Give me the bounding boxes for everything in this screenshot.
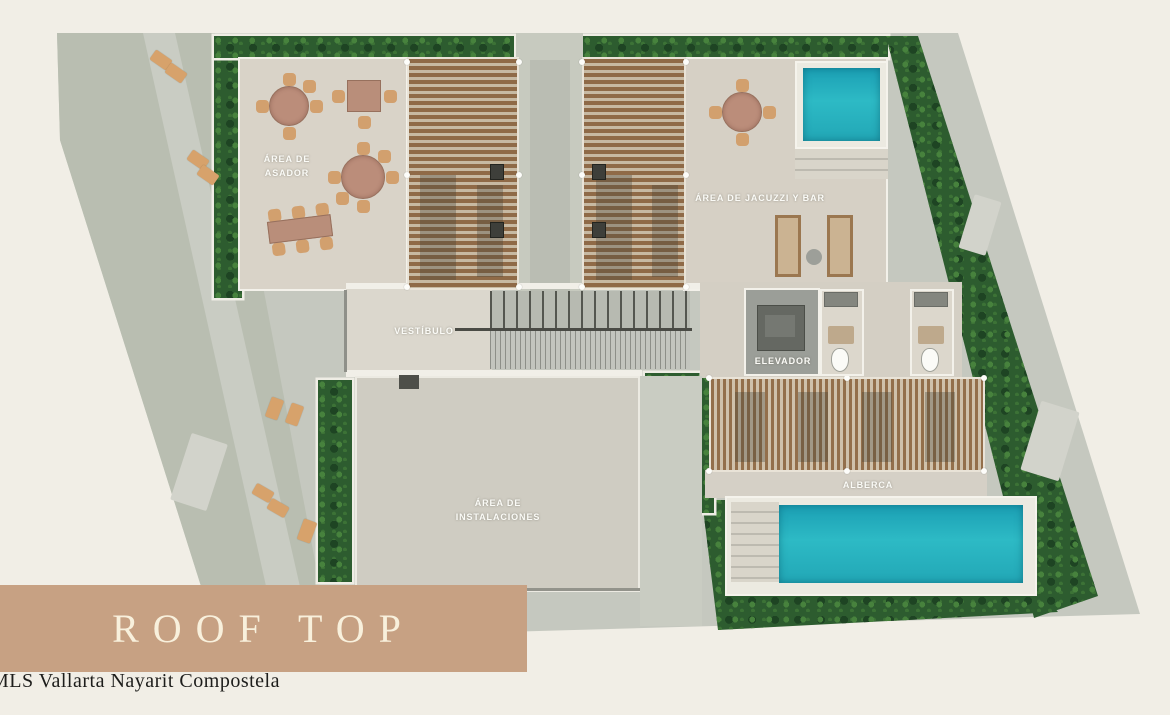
bathroom-1-counter <box>824 292 858 307</box>
deck-post <box>404 284 410 290</box>
deck-post <box>404 172 410 178</box>
pool-steps <box>731 502 779 582</box>
deck-post <box>579 59 585 65</box>
deck-post <box>404 59 410 65</box>
label-vestibulo: VESTÍBULO <box>394 324 454 338</box>
central-corridor-strip <box>530 60 570 295</box>
round-table-1 <box>269 86 309 126</box>
grill-module-3 <box>592 164 606 180</box>
bathroom-2-toilet <box>921 348 939 372</box>
round-planter-3 <box>903 41 957 95</box>
walkway-right-of-inst <box>640 376 702 626</box>
label-elevador: ELEVADOR <box>755 354 812 368</box>
deck-post <box>706 468 712 474</box>
stairs-handrail <box>455 328 692 331</box>
swimming-pool <box>779 505 1023 583</box>
alberca-lounger-4 <box>925 392 955 462</box>
deck-post <box>516 172 522 178</box>
round-table-2 <box>341 155 385 199</box>
deck-post <box>683 59 689 65</box>
grill-module-1 <box>490 164 504 180</box>
deck-post <box>981 468 987 474</box>
long-table <box>267 214 333 244</box>
green-planter-inst <box>318 380 352 582</box>
deck-post <box>579 172 585 178</box>
deck-post <box>683 284 689 290</box>
jacuzzi-pool <box>803 68 880 141</box>
alberca-lounger-3 <box>862 392 892 462</box>
wall-vestibule-left <box>344 290 347 372</box>
square-table <box>347 80 381 112</box>
bathroom-1-toilet <box>831 348 849 372</box>
deck-post <box>706 375 712 381</box>
green-planter-top-a <box>214 36 514 58</box>
label-asador-line1: ÁREA DE <box>264 154 310 164</box>
label-instalaciones-line1: ÁREA DE <box>475 498 521 508</box>
deck-post <box>516 284 522 290</box>
alberca-lounger-2 <box>798 392 828 462</box>
label-instalaciones: ÁREA DE INSTALACIONES <box>456 496 541 524</box>
title-banner: ROOF TOP <box>0 585 527 672</box>
side-table <box>806 249 822 265</box>
elevator-car-detail <box>765 315 795 337</box>
stairs-treads <box>490 331 690 369</box>
deck1-loungers <box>420 175 456 280</box>
deck2-loungers-b <box>652 185 678 277</box>
instalaciones-room <box>355 376 640 592</box>
grill-module-4 <box>592 222 606 238</box>
deck-post <box>579 284 585 290</box>
watermark-text: MLS Vallarta Nayarit Compostela <box>0 670 280 693</box>
bathroom-2-mat <box>918 326 944 344</box>
deck-post <box>981 375 987 381</box>
deck-post <box>516 59 522 65</box>
bar-table <box>722 92 762 132</box>
green-planter-top-b <box>583 36 888 58</box>
alberca-lounger-1 <box>735 392 765 462</box>
grill-module-2 <box>490 222 504 238</box>
jacuzzi-steps <box>795 149 888 179</box>
rooftop-floor-plan: ÁREA DE ASADOR ÁREA DE JACUZZI Y BAR VES… <box>0 0 1170 715</box>
bathroom-1-mat <box>828 326 854 344</box>
deck-post <box>683 172 689 178</box>
jacuzzi-lounger-2 <box>827 215 853 277</box>
round-planter-1 <box>140 302 192 354</box>
jacuzzi-lounger-1 <box>775 215 801 277</box>
label-asador: ÁREA DE ASADOR <box>264 152 310 180</box>
roof-vent <box>399 375 419 389</box>
label-asador-line2: ASADOR <box>265 168 309 178</box>
banner-title: ROOF TOP <box>112 605 415 652</box>
round-planter-4 <box>1060 543 1112 599</box>
label-instalaciones-line2: INSTALACIONES <box>456 512 541 522</box>
stairs-railing <box>490 291 690 331</box>
deck-post <box>844 468 850 474</box>
label-jacuzzi-bar: ÁREA DE JACUZZI Y BAR <box>695 191 825 205</box>
bathroom-2-counter <box>914 292 948 307</box>
label-alberca: ALBERCA <box>843 478 893 492</box>
